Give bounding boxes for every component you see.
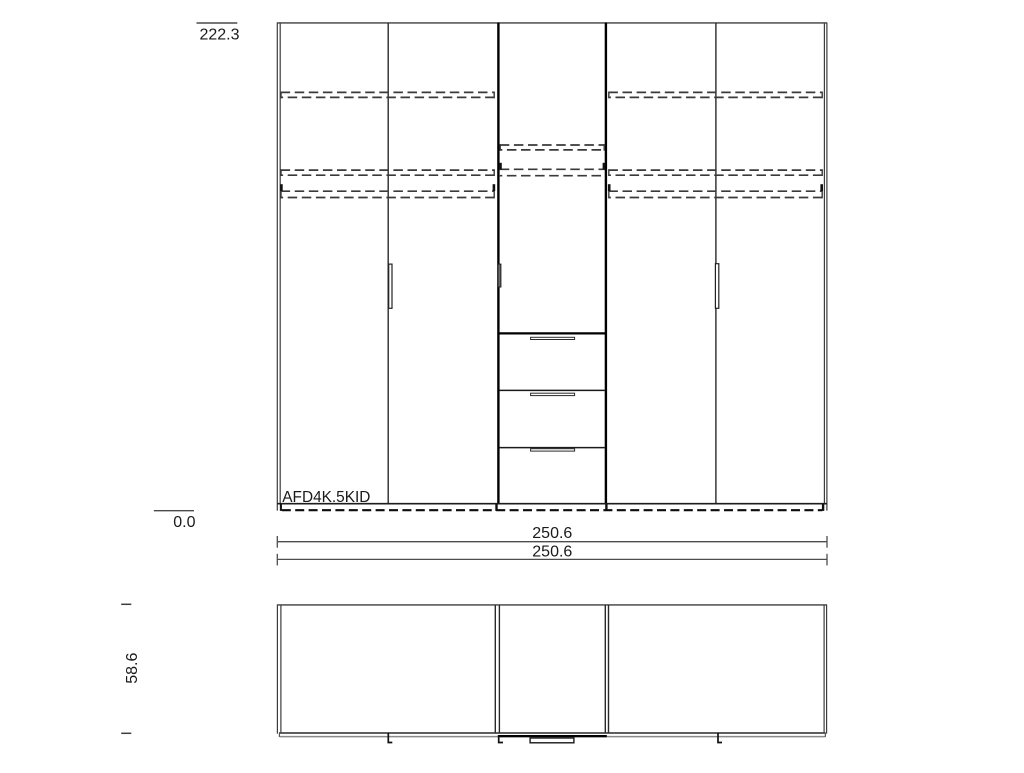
svg-text:222.3: 222.3	[199, 26, 239, 43]
svg-text:58.6: 58.6	[124, 653, 141, 684]
svg-text:0.0: 0.0	[173, 514, 195, 531]
svg-text:250.6: 250.6	[532, 525, 572, 542]
svg-text:250.6: 250.6	[532, 543, 572, 560]
svg-text:AFD4K.5KID: AFD4K.5KID	[282, 489, 370, 506]
